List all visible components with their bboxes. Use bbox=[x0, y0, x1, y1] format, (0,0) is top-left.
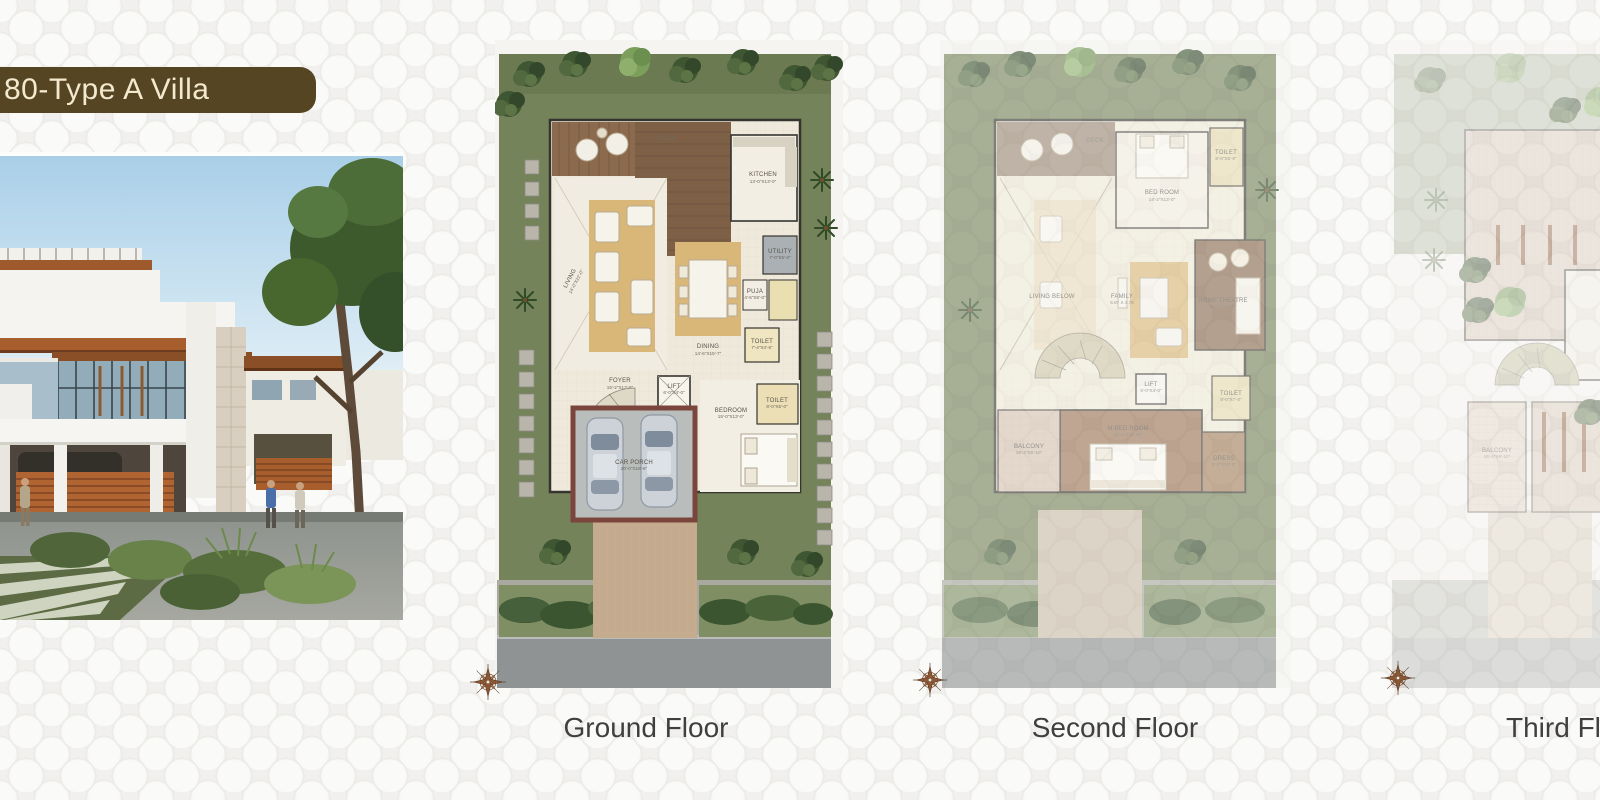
svg-text:DECK: DECK bbox=[1086, 138, 1103, 144]
svg-text:8'-0"X7'-0": 8'-0"X7'-0" bbox=[1220, 397, 1242, 402]
compass-rose-icon bbox=[912, 662, 948, 698]
toilet-ground: TOILET 7'-4"X4'-6" bbox=[745, 328, 779, 362]
svg-text:6'-0"X4'-0": 6'-0"X4'-0" bbox=[1140, 388, 1162, 393]
svg-text:7'-0"X5'-0": 7'-0"X5'-0" bbox=[769, 255, 791, 260]
wash bbox=[769, 280, 797, 320]
utility: UTILITY 7'-0"X5'-0" bbox=[763, 236, 797, 274]
third-floor-label: Third Floor bbox=[1506, 712, 1600, 744]
toilet-a: TOILET 8'-0"X5'-0" bbox=[1210, 128, 1243, 186]
home-theatre: HOME THEATRE 13'-2"X16'-0" bbox=[1195, 240, 1265, 350]
svg-text:KITCHEN: KITCHEN bbox=[749, 172, 777, 178]
toilet-b: TOILET 8'-0"X7'-0" bbox=[1212, 376, 1250, 420]
villa-type-title: 80-Type A Villa bbox=[4, 73, 209, 107]
svg-text:BED ROOM: BED ROOM bbox=[1145, 190, 1179, 196]
balcony3: BALCONY 16'-4"X6'-10" bbox=[1468, 402, 1526, 512]
balcony2: BALCONY 16'-4"X6'-10" bbox=[998, 410, 1060, 492]
svg-text:20'-2"X15'-10": 20'-2"X15'-10" bbox=[1113, 432, 1142, 437]
rear-villa bbox=[244, 356, 348, 490]
puja: PUJA 4'-6"X6'-0" bbox=[743, 280, 767, 310]
terrace-lower bbox=[1532, 399, 1600, 512]
deck-label: DECK bbox=[658, 136, 675, 142]
ground-floor-label: Ground Floor bbox=[496, 712, 796, 744]
svg-text:8'-0"X5'-0": 8'-0"X5'-0" bbox=[766, 404, 788, 409]
svg-text:LIVING BELOW: LIVING BELOW bbox=[1029, 294, 1075, 300]
lift2: LIFT 6'-0"X4'-0" bbox=[1136, 374, 1166, 404]
svg-text:16'-4"X6'-10": 16'-4"X6'-10" bbox=[1016, 450, 1043, 455]
lift: LIFT 6'-0"X4'-0" bbox=[658, 376, 690, 408]
living-room: LIVING 14'-0"X22'-0" bbox=[555, 178, 667, 370]
svg-text:15'-0"X13'-0": 15'-0"X13'-0" bbox=[718, 414, 745, 419]
second-floor-plan-image: DECK LIVING BELOW BED ROOM 14'-2"X13'-0" bbox=[940, 40, 1291, 688]
villa-photo-art bbox=[0, 152, 403, 620]
svg-text:FOYER: FOYER bbox=[609, 378, 631, 384]
svg-text:6'-0"X4'-0": 6'-0"X4'-0" bbox=[663, 390, 685, 395]
kitchen: KITCHEN 13'-0"X13'-0" bbox=[731, 135, 797, 221]
svg-text:16'-4"X6'-10": 16'-4"X6'-10" bbox=[1484, 454, 1511, 459]
dress: DRESS 9'-2"X10'-0" bbox=[1202, 432, 1245, 492]
svg-text:DINING: DINING bbox=[697, 344, 719, 350]
villa-type-banner: 80-Type A Villa bbox=[0, 67, 316, 113]
svg-text:7'-4"X4'-6": 7'-4"X4'-6" bbox=[751, 345, 773, 350]
bed-room: BED ROOM 14'-2"X13'-0" bbox=[1116, 132, 1208, 228]
ground-floor-plan-image: DECK KITCHEN 13'-0"X13'-0" bbox=[495, 40, 843, 688]
car-porch: CAR PORCH 20'-0"X18'-6" bbox=[573, 408, 695, 520]
svg-text:4'-6"X6'-0": 4'-6"X6'-0" bbox=[744, 295, 766, 300]
third-floor-plan-image: BALCONY 16'-4"X6'-10" bbox=[1390, 40, 1600, 688]
villa-exterior-photo bbox=[0, 152, 403, 620]
svg-text:13'-0"X13'-0": 13'-0"X13'-0" bbox=[750, 179, 777, 184]
compass-rose-icon bbox=[1380, 660, 1416, 696]
svg-text:5.87 X 4.75: 5.87 X 4.75 bbox=[1110, 300, 1134, 305]
second-floor-label: Second Floor bbox=[965, 712, 1265, 744]
m-bed-room: M.BED ROOM 20'-2"X15'-10" bbox=[1060, 410, 1202, 492]
slide: 80-Type A Villa bbox=[0, 0, 1600, 800]
svg-text:14'-6"X15'-7": 14'-6"X15'-7" bbox=[695, 351, 722, 356]
deck2: DECK bbox=[997, 122, 1115, 176]
bedroom: TOILET 8'-0"X5'-0" BEDROOM 15'-0"X13'-0" bbox=[700, 380, 800, 492]
svg-text:14'-2"X13'-0": 14'-2"X13'-0" bbox=[1149, 197, 1176, 202]
svg-text:20'-0"X18'-6": 20'-0"X18'-6" bbox=[621, 466, 648, 471]
svg-text:9'-2"X10'-0": 9'-2"X10'-0" bbox=[1212, 462, 1236, 467]
driveway bbox=[593, 510, 697, 638]
svg-text:13'-2"X16'-0": 13'-2"X16'-0" bbox=[1210, 304, 1237, 309]
svg-text:8'-0"X5'-0": 8'-0"X5'-0" bbox=[1215, 156, 1237, 161]
compass-rose-icon bbox=[469, 663, 507, 701]
